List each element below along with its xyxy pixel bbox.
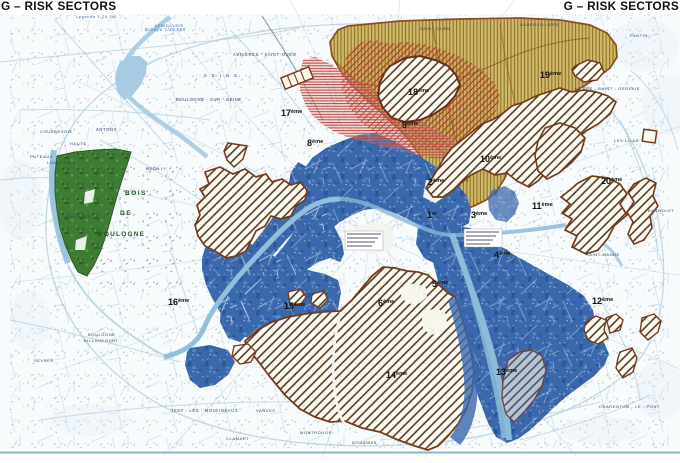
svg-text:LES LILAS: LES LILAS	[614, 138, 639, 143]
svg-text:COURBEVOIE: COURBEVOIE	[40, 129, 73, 134]
svg-text:CLAMART: CLAMART	[226, 436, 249, 441]
svg-text:LE PRE - SAINT - GERVAIS: LE PRE - SAINT - GERVAIS	[575, 86, 640, 91]
svg-text:ASNIERES - SAINT-OUEN: ASNIERES - SAINT-OUEN	[233, 52, 296, 57]
svg-text:SAINT-OUEN: SAINT-OUEN	[420, 26, 450, 31]
svg-text:MONTROUGE: MONTROUGE	[300, 430, 332, 435]
svg-text:AUBERVILLIERS: AUBERVILLIERS	[520, 22, 559, 27]
svg-text:Legende 1:25 0M: Legende 1:25 0M	[76, 14, 116, 19]
svg-text:PANTIN: PANTIN	[630, 33, 648, 38]
svg-text:BOULOGNE - SUR - SEINE: BOULOGNE - SUR - SEINE	[176, 97, 242, 102]
svg-text:LODECIDES: LODECIDES	[47, 160, 76, 165]
svg-text:G – RISK SECTORS: G – RISK SECTORS	[564, 0, 679, 13]
svg-text:HAUTS: HAUTS	[70, 141, 87, 146]
svg-text:SAINT-MANDE: SAINT-MANDE	[586, 252, 620, 257]
svg-text:BILLANCOURT: BILLANCOURT	[84, 338, 119, 343]
svg-text:PUTEAUX: PUTEAUX	[30, 154, 53, 159]
svg-text:BAGNOLET: BAGNOLET	[648, 208, 675, 213]
svg-text:BOULOGNE: BOULOGNE	[98, 231, 145, 238]
svg-text:G – RISK SECTORS: G – RISK SECTORS	[1, 0, 116, 13]
svg-text:ISSY - LES - MOULINEAUX: ISSY - LES - MOULINEAUX	[172, 408, 238, 413]
svg-text:070420503: 070420503	[352, 441, 376, 445]
svg-text:VANVES: VANVES	[256, 408, 276, 413]
svg-text:BOULOGNE: BOULOGNE	[88, 332, 115, 337]
svg-text:S E I N E: S E I N E	[204, 73, 239, 78]
svg-text:BOIS: BOIS	[125, 190, 147, 197]
svg-text:SURESNES: SURESNES	[64, 214, 91, 219]
svg-text:DE: DE	[120, 210, 132, 217]
svg-text:ANTONY: ANTONY	[96, 127, 117, 132]
svg-text:NEUILLY: NEUILLY	[146, 166, 167, 171]
svg-text:SEVRES: SEVRES	[34, 358, 54, 363]
svg-text:LYDICLYSIS: LYDICLYSIS	[155, 23, 184, 28]
svg-text:CHARENTON - LE - PONT: CHARENTON - LE - PONT	[599, 404, 660, 409]
